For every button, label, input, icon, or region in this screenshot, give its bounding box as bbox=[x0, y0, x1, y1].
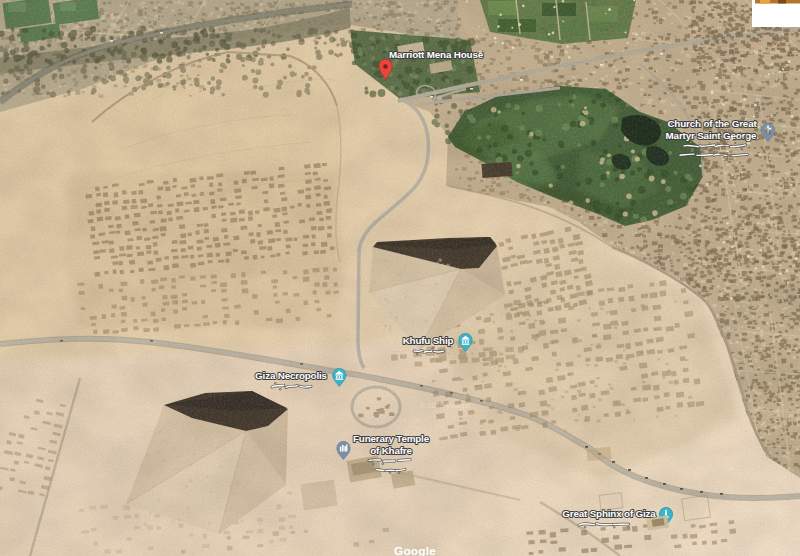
svg-text:of Khafre: of Khafre bbox=[370, 445, 412, 456]
svg-text:© 2019 Google: © 2019 Google bbox=[420, 401, 471, 410]
svg-text:Google: Google bbox=[394, 544, 436, 556]
svg-text:Khufu Ship: Khufu Ship bbox=[403, 335, 454, 346]
svg-text:Marriott Mena House: Marriott Mena House bbox=[389, 49, 484, 60]
svg-text:Giza Necropolis: Giza Necropolis bbox=[255, 370, 327, 381]
svg-text:Martyr Saint George: Martyr Saint George bbox=[666, 130, 757, 141]
svg-text:Funerary Temple: Funerary Temple bbox=[353, 433, 430, 444]
